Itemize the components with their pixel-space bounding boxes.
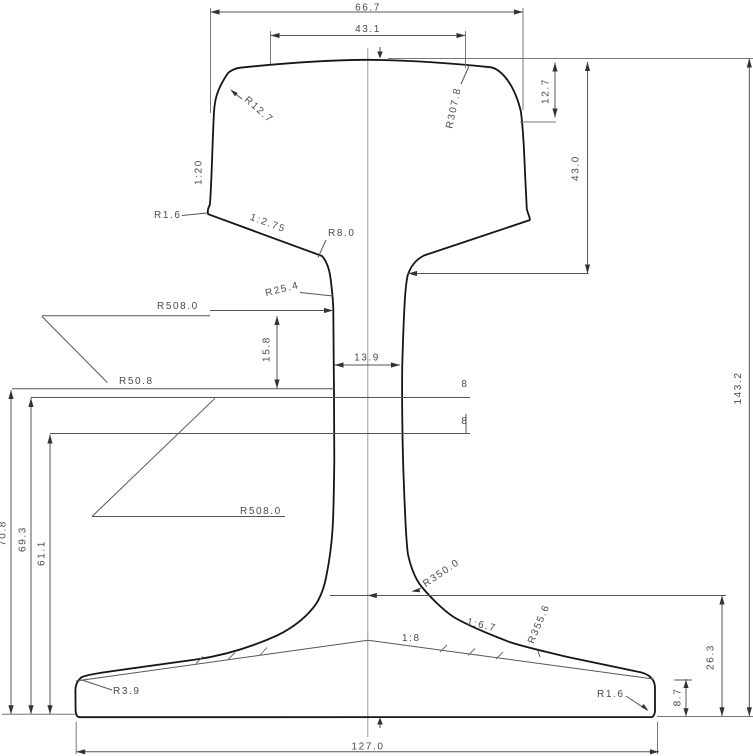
svg-text:1:8: 1:8: [402, 633, 421, 644]
svg-text:43.0: 43.0: [571, 155, 582, 181]
svg-text:R50.8: R50.8: [119, 376, 154, 387]
svg-text:12.7: 12.7: [541, 78, 552, 104]
svg-text:127.0: 127.0: [351, 742, 384, 753]
svg-text:1:20: 1:20: [194, 159, 205, 185]
svg-text:13.9: 13.9: [354, 353, 380, 364]
svg-text:43.1: 43.1: [355, 24, 381, 35]
svg-text:8: 8: [461, 379, 468, 390]
svg-text:143.2: 143.2: [733, 371, 744, 404]
svg-text:61.1: 61.1: [37, 540, 48, 566]
svg-text:8: 8: [461, 416, 468, 427]
svg-text:R1.6: R1.6: [154, 210, 182, 221]
svg-text:69.3: 69.3: [18, 526, 29, 552]
svg-text:66.7: 66.7: [355, 3, 381, 14]
svg-text:R3.9: R3.9: [113, 686, 141, 697]
svg-text:R508.0: R508.0: [240, 506, 282, 517]
svg-text:8.7: 8.7: [673, 688, 684, 707]
svg-text:70.8: 70.8: [0, 520, 9, 546]
svg-text:R1.6: R1.6: [597, 689, 625, 700]
svg-text:26.3: 26.3: [706, 644, 717, 670]
svg-text:15.8: 15.8: [262, 336, 273, 362]
svg-text:R8.0: R8.0: [328, 228, 356, 239]
svg-text:R508.0: R508.0: [157, 301, 199, 312]
